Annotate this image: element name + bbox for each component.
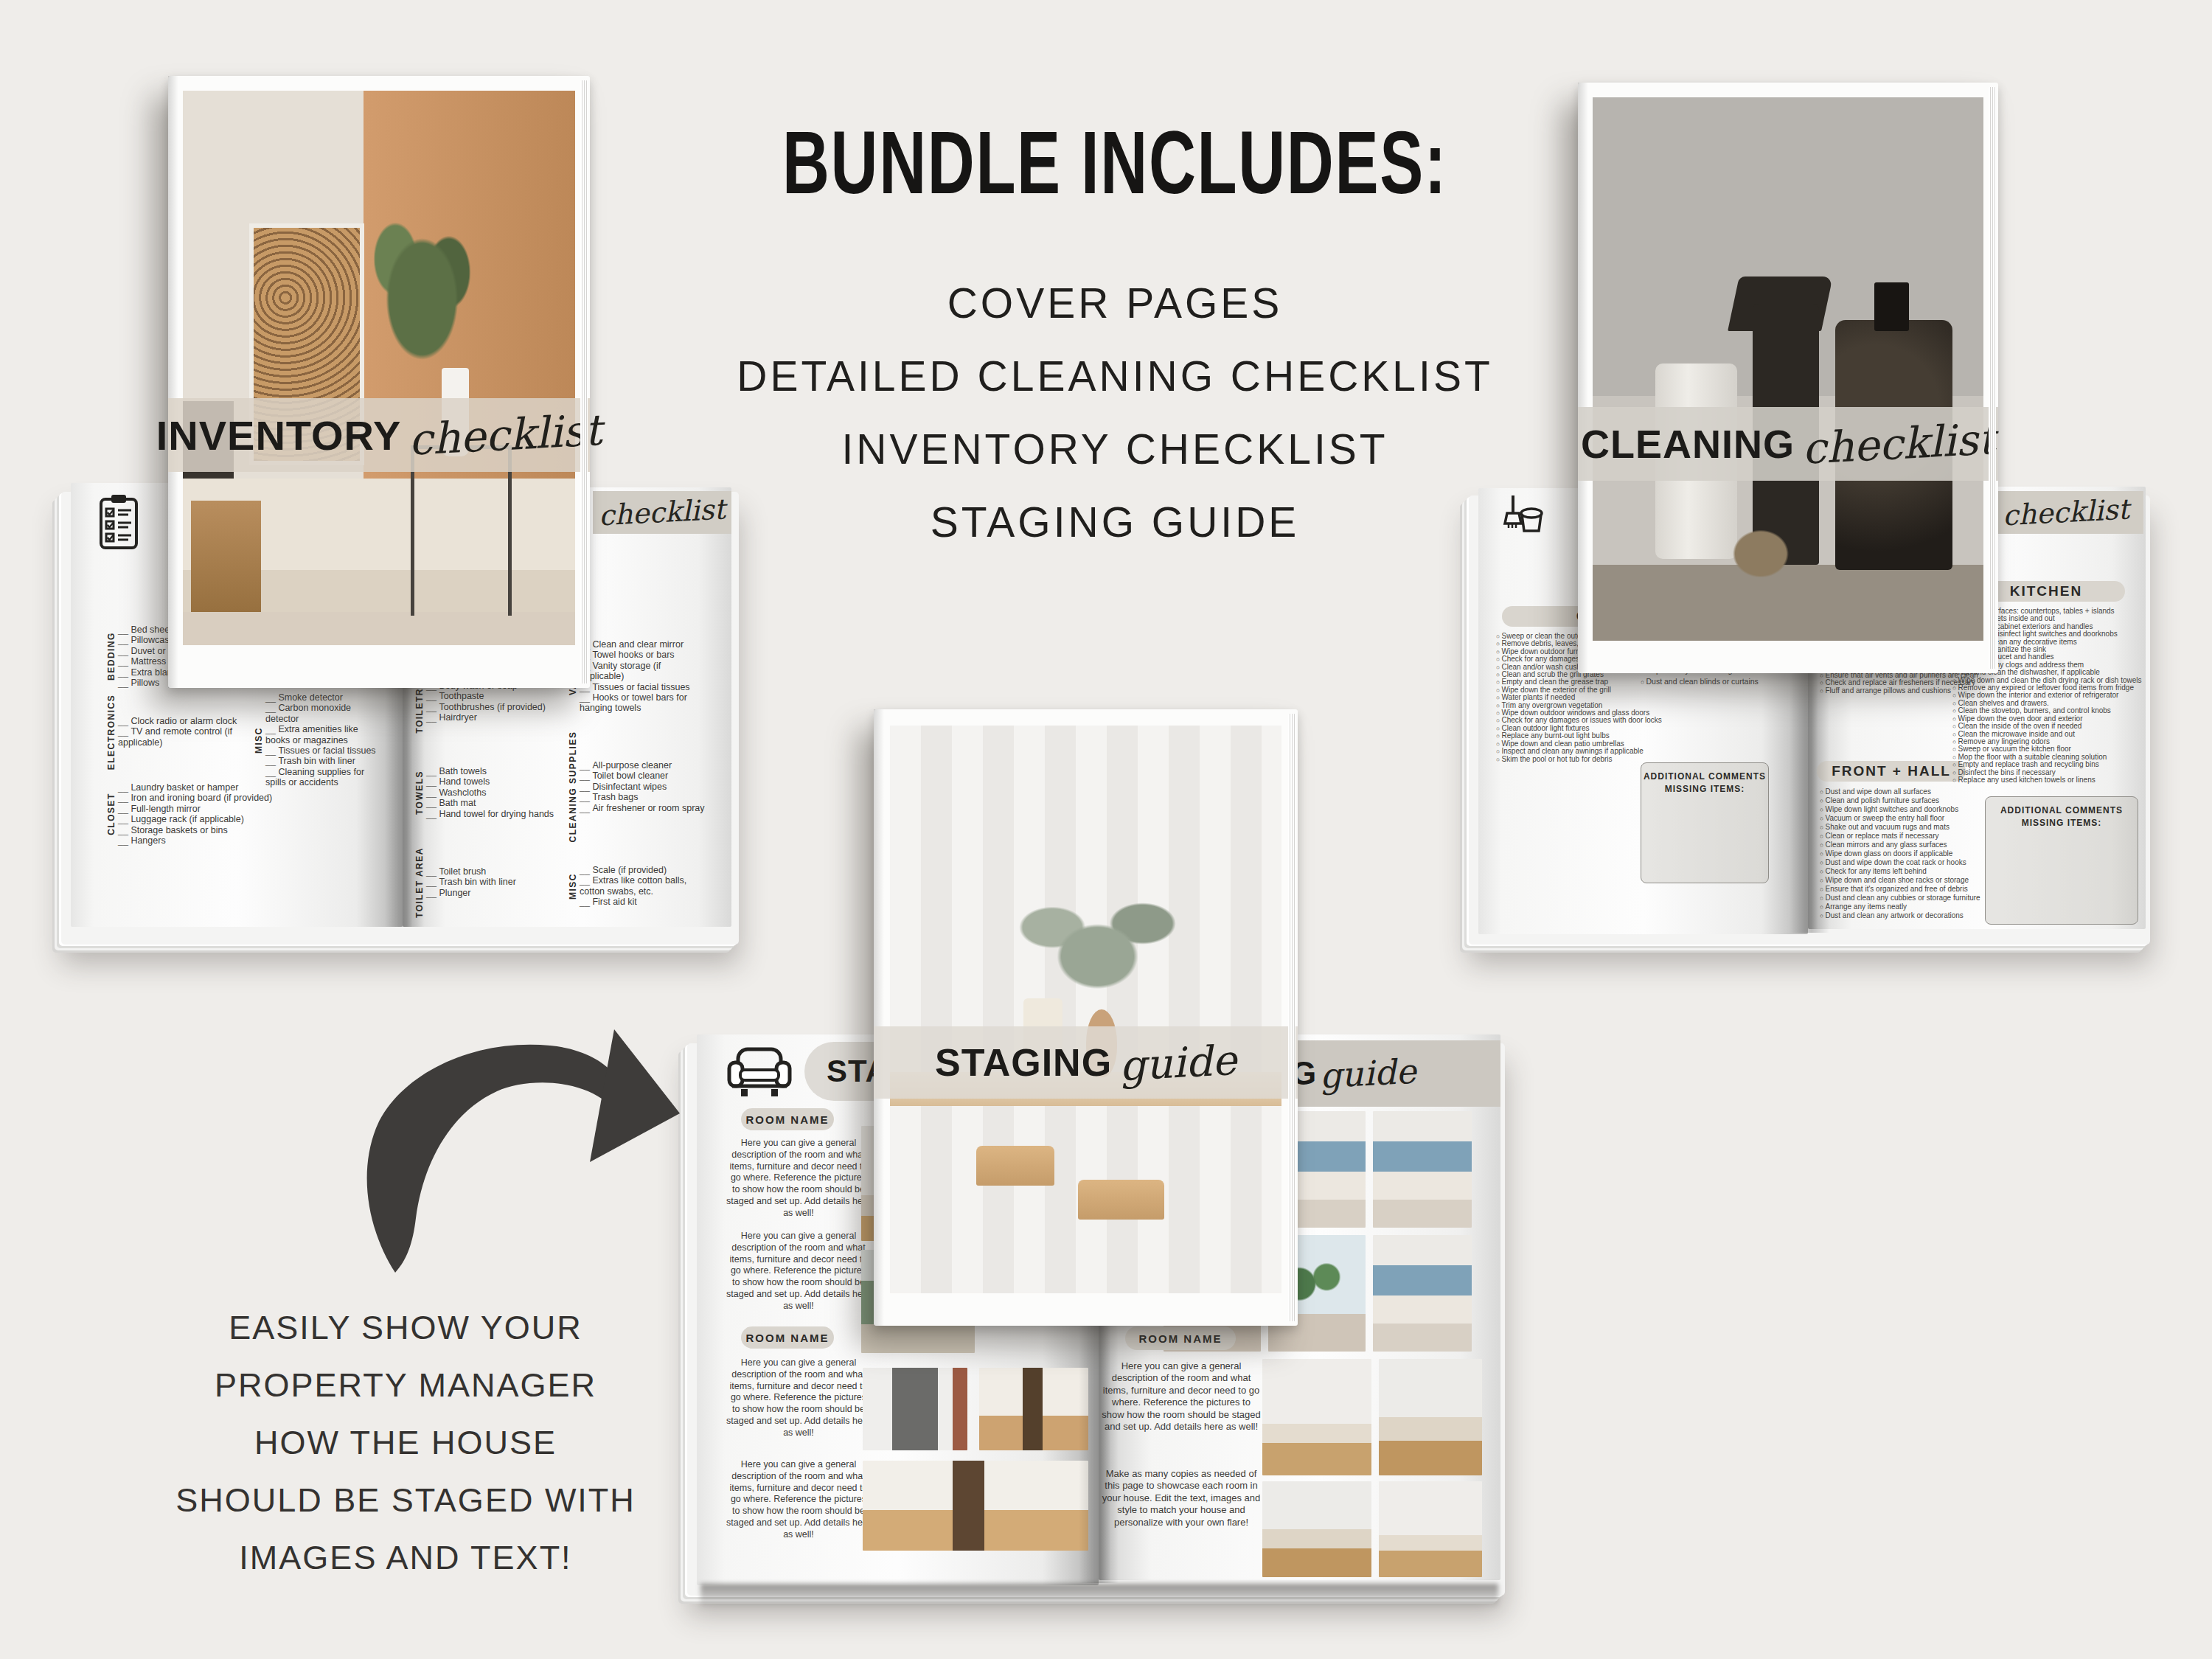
inventory-item: Carbon monoxide detector [265, 703, 380, 724]
cleaning-page-header-band: checklist [1989, 491, 2143, 534]
cleaning-item: Shake out and vacuum rugs and mats [1820, 823, 1988, 832]
room-description-2: Here you can give a general description … [726, 1231, 871, 1312]
cleaning-item: Vacuum or sweep the entry hall floor [1820, 814, 1988, 823]
section-toilet-area: TOILET AREA Toilet brushTrash bin with l… [426, 866, 556, 898]
staging-photo-living [1379, 1481, 1482, 1577]
inventory-item: Clock radio or alarm clock [118, 716, 249, 726]
inventory-item: Trash bin with liner [426, 877, 556, 887]
staging-photo-living [1379, 1359, 1482, 1475]
inventory-item: Iron and ironing board (if provided) [118, 793, 291, 803]
inventory-item: Toothpaste [426, 691, 550, 701]
promo-line: HOW THE HOUSE [140, 1414, 671, 1472]
section-label-bedding: BEDDING [106, 632, 116, 681]
cleaning-item: Replace any used kitchen towels or linen… [1952, 776, 2143, 784]
inventory-item: Vanity storage (if applicable) [580, 661, 705, 682]
promo-text: EASILY SHOW YOURPROPERTY MANAGERHOW THE … [140, 1299, 671, 1587]
cover-title-script: guide [1119, 1035, 1238, 1089]
inventory-cover: INVENTORY checklist [168, 76, 590, 688]
inventory-item: Storage baskets or bins [118, 825, 291, 835]
staging-cover-photo [890, 726, 1281, 1293]
inventory-item: Toilet bowl cleaner [580, 771, 712, 781]
section-cleaning-supplies: CLEANING SUPPLIES All-purpose cleanerToi… [580, 760, 712, 813]
inventory-item: Hangers [118, 835, 291, 846]
inventory-item: Trash bin with liner [265, 756, 380, 766]
dried-leaves [1710, 510, 1812, 597]
section-closet: CLOSET Laundry basket or hamperIron and … [118, 782, 291, 846]
staging-photo-hallway [979, 1368, 1088, 1450]
cleaning-item: Wipe down light switches and doorknobs [1820, 805, 1988, 814]
promo-line: SHOULD BE STAGED WITH [140, 1472, 671, 1529]
inventory-item: Towel hooks or bars [580, 650, 705, 660]
inventory-item: Air freshener or room spray [580, 803, 712, 813]
inventory-item: Bath mat [426, 798, 556, 808]
cleaning-item: Clean the inside of the oven if needed [1952, 723, 2143, 730]
inventory-item: Scale (if provided) [580, 865, 703, 875]
listing-graphic: BUNDLE INCLUDES: COVER PAGESDETAILED CLE… [0, 0, 2212, 1659]
wood-stool [1078, 1180, 1164, 1220]
comments-line-2: MISSING ITEMS: [1986, 817, 2138, 829]
section-label-misc: MISC [254, 727, 264, 754]
cleaning-item: Arrange any items neatly [1820, 902, 1988, 911]
armchair-icon [726, 1046, 793, 1099]
cover-title-bold: STAGING [935, 1040, 1112, 1085]
cleaning-item: Clean and polish furniture surfaces [1820, 796, 1988, 805]
cleaning-item: Clean or replace mats if necessary [1820, 832, 1988, 841]
inventory-item: Bath towels [426, 766, 556, 776]
inventory-item: Extras like cotton balls, cotton swabs, … [580, 875, 703, 897]
inventory-item: Full-length mirror [118, 804, 291, 814]
bundle-list-item: COVER PAGES [599, 267, 1631, 340]
spread-floor-shadow [700, 1584, 1498, 1609]
inventory-item: Luggage rack (if applicable) [118, 814, 291, 824]
section-label-misc-2: MISC [568, 873, 578, 900]
staging-photo-bedroom [1373, 1111, 1472, 1228]
room-description-1: Here you can give a general description … [726, 1138, 871, 1220]
cleaning-item: Wipe down and clean shoe racks or storag… [1820, 876, 1988, 885]
inventory-item: Toothbrushes (if provided) [426, 702, 550, 712]
bundle-list-item: DETAILED CLEANING CHECKLIST [599, 340, 1631, 413]
cleaning-item: Dust and wipe down the coat rack or hook… [1820, 858, 1988, 867]
room-description-4: Here you can give a general description … [726, 1459, 871, 1541]
inventory-title-band: INVENTORY checklist [168, 398, 590, 472]
section-label-electronics: ELECTRONICS [106, 694, 116, 770]
cover-title-script: checklist [1801, 414, 1996, 474]
room-name-pill-2: ROOM NAME [741, 1326, 834, 1349]
front-hall-section-pill: FRONT + HALL [1817, 761, 1966, 782]
inventory-item: Tissues or facial tissues [580, 682, 705, 692]
inventory-item: Cleaning supplies for spills or accident… [265, 767, 380, 788]
cleaning-item: Dust and clean blinds or curtains [1641, 676, 1766, 687]
room-description-right: Here you can give a general description … [1100, 1360, 1262, 1433]
cover-title-script: checklist [408, 405, 603, 465]
bottle-neck [1874, 282, 1910, 331]
additional-comments-box-2: ADDITIONAL COMMENTS MISSING ITEMS: [1985, 796, 2138, 925]
inventory-item: Toilet brush [426, 866, 556, 877]
comments-line-1: ADDITIONAL COMMENTS [1986, 804, 2138, 817]
broom-bucket-icon [1500, 494, 1543, 546]
staging-photo-door [863, 1368, 967, 1450]
staging-cover: STAGING guide [874, 709, 1298, 1326]
cleaning-item: Empty and replace trash and recycling bi… [1952, 761, 2143, 768]
staging-photo-hallway-wide [863, 1461, 1088, 1551]
curved-arrow-icon [352, 1025, 684, 1276]
cleaning-title-band: CLEANING checklist [1578, 407, 1998, 481]
clipboard-icon [99, 493, 139, 551]
room-name-pill-3: ROOM NAME [1125, 1326, 1236, 1350]
inventory-item: Extra amenities like books or magazines [265, 724, 380, 745]
inventory-item: Hooks or towel bars for hanging towels [580, 692, 705, 714]
section-label-cleaning-supplies: CLEANING SUPPLIES [568, 731, 578, 843]
room-description-3: Here you can give a general description … [726, 1357, 871, 1439]
cleaning-cover: CLEANING checklist [1578, 83, 1998, 673]
inventory-item: Tissues or facial tissues [265, 745, 380, 756]
inventory-item: Smoke detector [265, 692, 380, 703]
inventory-item: Washcloths [426, 787, 556, 798]
inventory-item: First aid kit [580, 897, 703, 907]
additional-comments-box: ADDITIONAL COMMENTS MISSING ITEMS: [1641, 762, 1769, 883]
staging-photo-living [1262, 1359, 1371, 1475]
cleaning-item: Dust and wipe down all surfaces [1820, 787, 1988, 796]
staging-photo-living [1262, 1481, 1371, 1577]
cleaning-cover-photo [1593, 97, 1983, 641]
inventory-item: Hairdryer [426, 712, 550, 723]
inventory-item: Clean and clear mirror [580, 639, 705, 650]
cleaning-item: Inspect and clean any awnings if applica… [1496, 748, 1800, 755]
section-vanity: VANITY Clean and clear mirrorTowel hooks… [580, 639, 705, 714]
bundle-list-item: INVENTORY CHECKLIST [599, 413, 1631, 486]
comments-line-1: ADDITIONAL COMMENTS [1641, 771, 1768, 783]
staging-photo-bedroom [1373, 1235, 1472, 1352]
front-hall-items: Dust and wipe down all surfacesClean and… [1820, 787, 1988, 920]
inventory-item: Hand towel for drying hands [426, 809, 556, 819]
cleaning-item: Dust and clean any cubbies or storage fu… [1820, 894, 1988, 902]
wood-stool [976, 1146, 1054, 1186]
promo-line: IMAGES AND TEXT! [140, 1529, 671, 1587]
section-towels: TOWELS Bath towelsHand towelsWashclothsB… [426, 766, 556, 819]
cleaning-item: Clean mirrors and any glass surfaces [1820, 841, 1988, 849]
wood-bench [191, 501, 262, 611]
promo-line: PROPERTY MANAGER [140, 1357, 671, 1414]
section-misc: MISC Smoke detectorCarbon monoxide detec… [265, 692, 380, 788]
cover-title-bold: INVENTORY [156, 411, 402, 459]
copies-note: Make as many copies as needed of this pa… [1100, 1468, 1262, 1528]
page-title: BUNDLE INCLUDES: [563, 111, 1666, 214]
staging-title-band: STAGING guide [874, 1026, 1298, 1099]
cleaning-item: Ensure that it's organized and free of d… [1820, 885, 1988, 894]
cleaning-item: Wipe down glass on doors if applicable [1820, 849, 1988, 858]
section-label-closet: CLOSET [106, 793, 116, 835]
cleaning-page-header-script: checklist [2002, 493, 2130, 532]
inventory-item: TV and remote control (if applicable) [118, 726, 249, 748]
section-electronics: ELECTRONICS Clock radio or alarm clockTV… [118, 716, 249, 748]
inventory-item: Trash bags [580, 792, 712, 802]
inventory-item: Plunger [426, 888, 556, 898]
inventory-cover-photo [183, 91, 575, 645]
cleaning-item: Dust and clean any artwork or decoration… [1820, 911, 1988, 920]
inventory-page-header-band: checklist [593, 491, 731, 534]
comments-line-2: MISSING ITEMS: [1641, 783, 1768, 796]
section-misc-2: MISC Scale (if provided)Extras like cott… [580, 865, 703, 908]
room-name-pill-1: ROOM NAME [741, 1108, 834, 1130]
staging-header-script: guide [1319, 1051, 1417, 1096]
inventory-item: Hand towels [426, 776, 556, 787]
inventory-item: All-purpose cleaner [580, 760, 712, 771]
promo-line: EASILY SHOW YOUR [140, 1299, 671, 1357]
cover-title-bold: CLEANING [1581, 421, 1795, 467]
cleaning-item: Check for any items left behind [1820, 867, 1988, 876]
inventory-page-header-script: checklist [598, 493, 726, 532]
inventory-item: Disinfectant wipes [580, 782, 712, 792]
